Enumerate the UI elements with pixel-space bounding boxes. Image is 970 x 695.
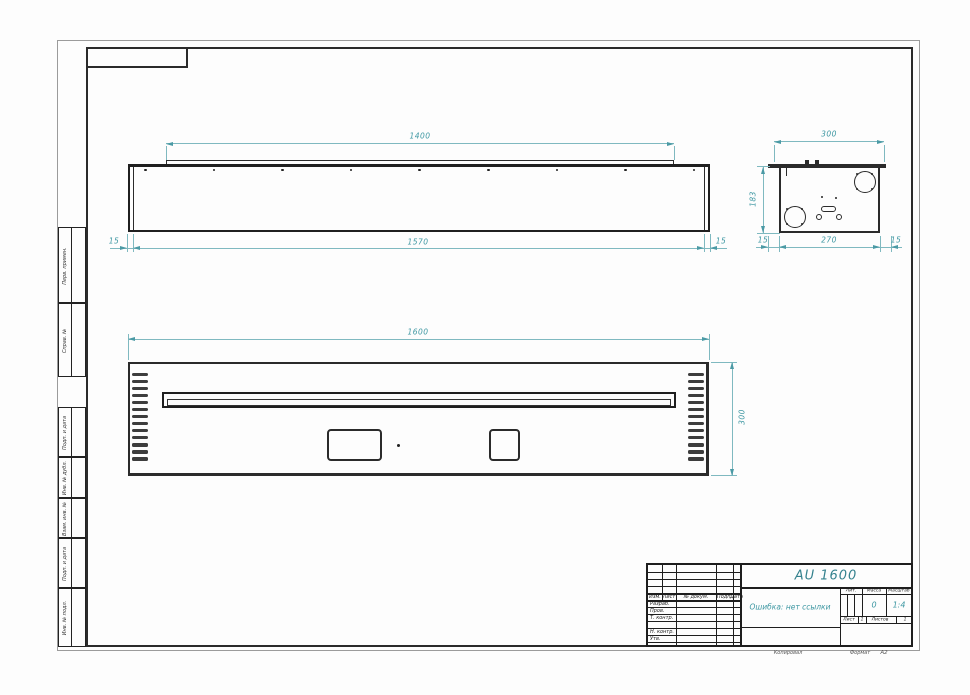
strip-label: Справ. № — [62, 329, 68, 353]
pin-hole-dot — [821, 196, 823, 198]
tb-line — [854, 594, 855, 616]
strip-divider — [71, 539, 72, 587]
strip-divider — [71, 228, 72, 302]
ext-line — [166, 146, 167, 160]
dim-arrow — [120, 246, 127, 250]
cable-slot — [821, 206, 836, 212]
tb-line — [648, 642, 740, 643]
tb-line — [847, 594, 848, 616]
dim-text-side-left-offset: 15 — [758, 236, 769, 245]
title-block: Изм. Лист № докум. Подп. Дата Разраб. Пр… — [646, 563, 913, 647]
small-hole — [816, 214, 822, 220]
format-value: А2 — [880, 650, 887, 656]
ext-line — [674, 146, 675, 160]
front-opening-right — [489, 429, 520, 461]
louver-slot-left — [132, 450, 148, 454]
louver-slot-right — [688, 401, 704, 405]
strip-label: Взам. инв. № — [62, 502, 68, 536]
ext-line — [880, 236, 881, 252]
louver-slot-right — [688, 380, 704, 384]
dim-arrow — [761, 245, 768, 249]
tb-line — [716, 565, 717, 645]
tb-row-nkontr: Н. контр. — [650, 629, 674, 635]
tb-line — [648, 635, 740, 636]
strip-divider — [71, 458, 72, 497]
tb-row-tkontr: Т. контр. — [650, 615, 673, 621]
tb-header-list: Лист — [663, 594, 676, 600]
strip-cell-vzam-inv: Взам. инв. № — [58, 498, 86, 538]
tb-line — [740, 627, 840, 628]
ext-line — [774, 145, 775, 162]
dim-arrow — [761, 167, 765, 174]
pin-hole-dot — [835, 197, 837, 199]
tb-scale-label: Масштаб — [888, 588, 909, 593]
louver-slot-left — [132, 415, 148, 419]
tb-sheet-value: 1 — [861, 617, 864, 622]
side-view-inner-step — [786, 168, 787, 176]
tb-line — [896, 616, 897, 623]
tb-line — [840, 594, 911, 595]
strip-divider — [71, 408, 72, 456]
dim-arrow — [697, 246, 704, 250]
tb-sheets-value: 1 — [904, 617, 907, 622]
strip-label: Инв. № подл. — [62, 601, 68, 636]
tb-line — [862, 587, 863, 616]
corner-stamp — [86, 47, 188, 68]
tb-row-razrab: Разраб. — [650, 601, 670, 607]
drawing-frame — [86, 47, 913, 647]
side-view-tab — [805, 160, 809, 164]
dim-arrow — [891, 245, 898, 249]
sheet: 1400 1570 15 15 — [0, 0, 970, 695]
tb-row-prov: Пров. — [650, 608, 665, 614]
louver-slot-right — [688, 394, 704, 398]
dim-arrow — [873, 245, 880, 249]
dim-text-side-height: 183 — [749, 191, 758, 207]
top-view-body — [128, 164, 710, 232]
dim-arrow — [702, 337, 709, 341]
side-view-tab — [815, 160, 819, 164]
louver-slot-left — [132, 380, 148, 384]
tb-sheets-label: Листов — [872, 617, 889, 622]
louver-slot-left — [132, 422, 148, 426]
dim-arrow — [166, 142, 173, 146]
tb-line — [740, 565, 742, 645]
ext-line — [127, 234, 128, 252]
louver-slot-right — [688, 415, 704, 419]
dim-arrow — [128, 337, 135, 341]
tb-line — [858, 616, 859, 623]
strip-cell-sprav-no: Справ. № — [58, 303, 86, 377]
dim-text-overall: 1570 — [407, 238, 428, 247]
top-view-inner-line-left — [133, 167, 134, 230]
louver-slot-left — [132, 394, 148, 398]
tb-header-data: Дата — [730, 594, 743, 600]
louver-slot-left — [132, 429, 148, 433]
dim-text-right-offset: 15 — [716, 237, 727, 246]
louver-slot-left — [132, 401, 148, 405]
tb-lit-label: Лит. — [846, 588, 856, 593]
mounting-hole-dot — [281, 169, 284, 172]
ext-line — [884, 145, 885, 162]
tb-line — [840, 623, 911, 624]
strip-label: Подп. и дата — [62, 547, 68, 581]
ext-line — [704, 234, 705, 252]
strip-divider — [71, 589, 72, 646]
tb-line — [648, 621, 740, 622]
tb-scale-value: 1:4 — [893, 601, 906, 610]
louver-slot-right — [688, 408, 704, 412]
dim-arrow — [761, 226, 765, 233]
louver-slot-right — [688, 457, 704, 461]
tb-line — [866, 616, 867, 623]
dim-line-300 — [774, 141, 884, 142]
louver-slot-right — [688, 373, 704, 377]
strip-cell-perv-primen: Перв. примен. — [58, 227, 86, 303]
strip-label: Перв. примен. — [62, 247, 68, 285]
front-opening-left — [327, 429, 382, 461]
dim-arrow — [667, 142, 674, 146]
tb-header-izm: Изм. — [649, 594, 661, 600]
dim-text-side-inner: 270 — [821, 236, 837, 245]
front-center-dot — [397, 444, 400, 447]
louver-slot-right — [688, 450, 704, 454]
louver-slot-left — [132, 457, 148, 461]
louver-slot-right — [688, 387, 704, 391]
dim-text-side-right-offset: 15 — [891, 236, 902, 245]
dim-arrow — [730, 362, 734, 369]
dim-arrow — [133, 246, 140, 250]
tb-designation: AU 1600 — [795, 568, 858, 583]
strip-divider — [71, 499, 72, 537]
dim-arrow — [730, 469, 734, 476]
dim-text-flange: 1400 — [409, 132, 430, 141]
tb-line — [886, 587, 887, 616]
tb-row-utv: Утв. — [650, 636, 661, 642]
strip-label: Подп. и дата — [62, 416, 68, 450]
louver-slot-left — [132, 408, 148, 412]
louver-slot-left — [132, 436, 148, 440]
louver-slot-right — [688, 422, 704, 426]
mounting-hole-dot — [487, 169, 490, 172]
ext-line — [757, 233, 780, 234]
dim-line-183 — [763, 167, 764, 233]
dim-text-front-width: 1600 — [407, 328, 428, 337]
dim-text-front-height: 300 — [738, 409, 747, 425]
tb-doc-name: Ошибка: нет ссылки — [750, 603, 831, 612]
mounting-hole-dot — [624, 169, 627, 172]
dim-line-270 — [756, 247, 902, 248]
burner-slot-inner — [167, 399, 671, 406]
dim-arrow — [779, 245, 786, 249]
dim-line-1400 — [166, 143, 674, 144]
strip-cell-podp-data-1: Подп. и дата — [58, 407, 86, 457]
copied-label: Копировал — [774, 650, 803, 656]
dim-arrow — [710, 246, 717, 250]
louver-slot-right — [688, 429, 704, 433]
mounting-hole-dot — [144, 169, 147, 172]
front-view-body — [128, 362, 709, 476]
louver-slot-left — [132, 387, 148, 391]
strip-label: Инв. № дубл. — [62, 461, 68, 495]
mounting-hole-dot — [556, 169, 559, 172]
mounting-hole-dot — [213, 169, 216, 172]
tb-sheet-label: Лист — [843, 617, 854, 622]
tb-mass-label: Масса — [867, 588, 881, 593]
dim-line-1570 — [110, 248, 727, 249]
format-label: Формат — [850, 650, 870, 656]
tb-header-docnum: № докум. — [684, 594, 709, 600]
ext-line — [709, 334, 710, 360]
louver-slot-left — [132, 443, 148, 447]
dim-text-left-offset: 15 — [109, 237, 120, 246]
dim-arrow — [877, 140, 884, 144]
ext-line — [779, 236, 780, 252]
dim-line-front-300 — [732, 362, 733, 476]
small-hole — [836, 214, 842, 220]
louver-slot-left — [132, 373, 148, 377]
strip-cell-podp-data-2: Подп. и дата — [58, 538, 86, 588]
tb-line — [676, 565, 677, 645]
louver-slot-right — [688, 436, 704, 440]
tb-line — [733, 565, 734, 645]
dim-text-side-width: 300 — [821, 130, 837, 139]
strip-divider — [71, 304, 72, 376]
dim-line-1600 — [128, 339, 709, 340]
top-view-inner-line-right — [704, 167, 705, 230]
louver-slot-right — [688, 443, 704, 447]
dim-arrow — [774, 140, 781, 144]
strip-cell-inv-dubl: Инв. № дубл. — [58, 457, 86, 498]
tb-mass-value: 0 — [871, 601, 876, 610]
strip-cell-inv-podl: Инв. № подл. — [58, 588, 86, 647]
mounting-hole-dot — [418, 169, 421, 172]
